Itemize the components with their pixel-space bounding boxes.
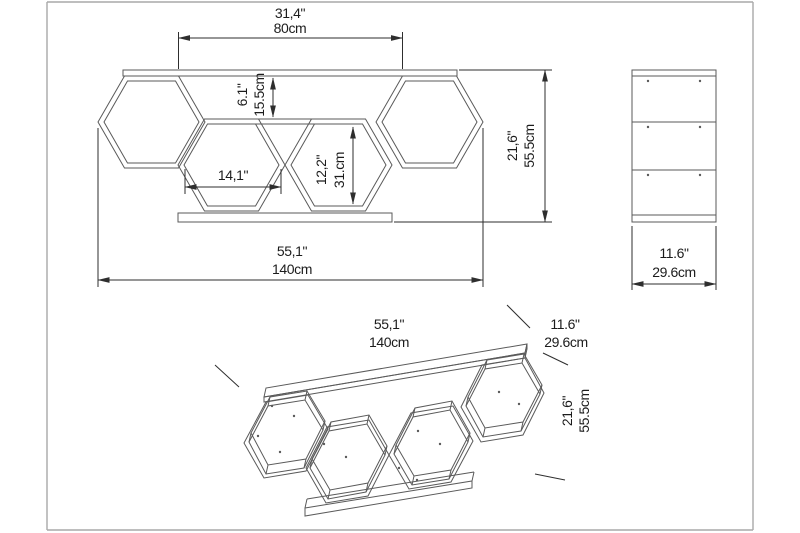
front-midleft-hex-inner bbox=[184, 124, 279, 206]
technical-drawing: 31,4" 80cm 6.1" 15.5cm 14,1" 12,2" 31.cm… bbox=[0, 0, 800, 533]
front-top-plank bbox=[123, 70, 457, 76]
front-right-hex-inner bbox=[382, 81, 477, 163]
dim-depth-inches: 11.6" bbox=[659, 245, 689, 261]
persp-height-cm: 55.5cm bbox=[576, 389, 592, 433]
perspective-view: 55,1" 140cm 11.6" 29.6cm 21,6" 55.5cm bbox=[215, 305, 592, 516]
front-left-hex-outer bbox=[98, 76, 205, 168]
front-right-hex-outer bbox=[376, 76, 483, 168]
front-dimensions: 31,4" 80cm 6.1" 15.5cm 14,1" 12,2" 31.cm… bbox=[98, 5, 552, 287]
front-bottom-bar bbox=[178, 213, 392, 222]
dim-total-width-inches: 55,1" bbox=[277, 243, 308, 259]
persp-width-inches: 55,1" bbox=[374, 316, 405, 332]
dim-offset-inches: 6.1" bbox=[234, 83, 250, 106]
dim-cell-height-inches: 12,2" bbox=[313, 154, 329, 185]
persp-height-inches: 21,6" bbox=[559, 395, 575, 426]
dimension-drawing-page: 31,4" 80cm 6.1" 15.5cm 14,1" 12,2" 31.cm… bbox=[0, 0, 800, 533]
persp-depth-inches: 11.6" bbox=[550, 316, 580, 332]
side-screw-holes bbox=[647, 80, 701, 176]
dim-cell-height-cm: 31.cm bbox=[331, 152, 347, 188]
dim-depth-cm: 29.6cm bbox=[652, 264, 696, 280]
front-midleft-hex-outer bbox=[178, 119, 285, 211]
front-view bbox=[98, 70, 483, 222]
side-view: 11.6" 29.6cm bbox=[632, 70, 716, 290]
dim-height-cm: 55.5cm bbox=[521, 124, 537, 168]
front-left-hex-inner bbox=[104, 81, 199, 163]
dim-offset-cm: 15.5cm bbox=[251, 73, 267, 117]
dim-cell-width-inches: 14,1" bbox=[218, 167, 249, 183]
dim-total-width-cm: 140cm bbox=[272, 261, 312, 277]
persp-plank-front bbox=[264, 353, 525, 402]
dim-height-inches: 21,6" bbox=[504, 130, 520, 161]
persp-screw-holes bbox=[257, 391, 520, 481]
dim-top-width-inches: 31,4" bbox=[275, 5, 306, 21]
persp-depth-cm: 29.6cm bbox=[544, 334, 588, 350]
persp-plank-top bbox=[264, 344, 527, 397]
dim-top-width-cm: 80cm bbox=[274, 20, 307, 36]
persp-width-cm: 140cm bbox=[369, 334, 409, 350]
side-profile bbox=[632, 70, 716, 222]
